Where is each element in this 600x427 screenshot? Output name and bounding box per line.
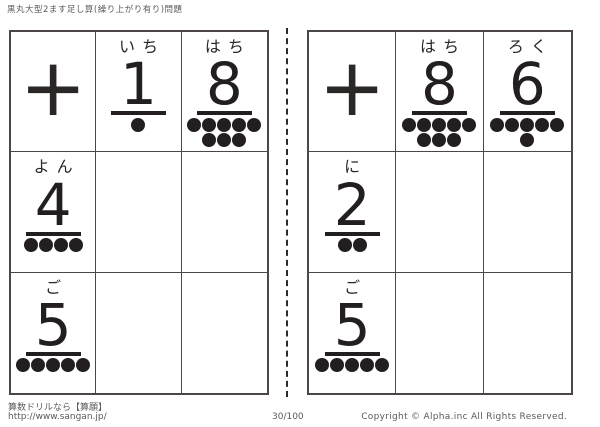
dot (315, 358, 329, 372)
dot (247, 118, 261, 132)
dot (187, 118, 201, 132)
dot (39, 238, 53, 252)
number-digit: 5 (26, 300, 81, 356)
left-addend-cell: ご 5 (11, 273, 96, 393)
number-digit: 4 (26, 180, 81, 236)
dot (16, 358, 30, 372)
dot (550, 118, 564, 132)
dot (232, 133, 246, 147)
page-indicator: 30/100 (272, 412, 304, 422)
dot (24, 238, 38, 252)
dot (61, 358, 75, 372)
plus-sign: + (319, 48, 386, 128)
dashed-cut-line (286, 28, 288, 397)
dot (360, 358, 374, 372)
answer-cell-empty (484, 152, 571, 272)
answer-cell-empty (396, 273, 483, 393)
number-block: ご 5 (16, 273, 91, 373)
dot-row (520, 132, 535, 147)
dot (417, 118, 431, 132)
number-digit: 6 (500, 59, 555, 115)
dot (505, 118, 519, 132)
dot (31, 358, 45, 372)
dot-group (490, 117, 565, 147)
dot-row (16, 358, 91, 373)
dot (330, 358, 344, 372)
number-block: ご 5 (315, 273, 390, 373)
dot-row (337, 238, 367, 253)
dot (432, 133, 446, 147)
dot (217, 133, 231, 147)
footer-site-url[interactable]: http://www.sangan.jp/ (8, 412, 107, 422)
dot-row (402, 117, 477, 132)
left-addend-cell: よん 4 (11, 152, 96, 272)
top-addend-cell: ろく 6 (484, 32, 571, 152)
answer-cell-empty (484, 273, 571, 393)
top-addend-cell: いち 1 (96, 32, 181, 152)
dot-group (337, 238, 367, 253)
dot-row (490, 117, 565, 132)
dot-group (23, 238, 83, 253)
dot (447, 118, 461, 132)
answer-cell-empty (96, 273, 181, 393)
dot-group (315, 358, 390, 373)
dot-row (187, 117, 262, 132)
dot (202, 118, 216, 132)
addition-table-left: + いち 1 はち 8 よん 4 ご 5 (9, 30, 269, 395)
dot-group (187, 117, 262, 147)
top-addend-cell: はち 8 (182, 32, 267, 152)
number-block: に 2 (325, 152, 380, 252)
top-addend-cell: はち 8 (396, 32, 483, 152)
dot (345, 358, 359, 372)
dot-group (131, 117, 146, 132)
dot (54, 238, 68, 252)
dot (375, 358, 389, 372)
answer-cell-empty (96, 152, 181, 272)
answer-cell-empty (182, 273, 267, 393)
number-digit: 1 (111, 59, 166, 115)
dot (462, 118, 476, 132)
number-block: よん 4 (23, 152, 83, 252)
dot (46, 358, 60, 372)
dot (490, 118, 504, 132)
dot (417, 133, 431, 147)
number-block: はち 8 (187, 32, 262, 147)
dot-row (315, 358, 390, 373)
copyright-text: Copyright © Alpha.inc All Rights Reserve… (361, 412, 567, 422)
dot (402, 118, 416, 132)
dot (353, 238, 367, 252)
number-block: いち 1 (111, 32, 166, 132)
dot (432, 118, 446, 132)
dot-row (417, 132, 462, 147)
number-digit: 5 (325, 300, 380, 356)
plus-sign: + (20, 48, 87, 128)
dot (202, 133, 216, 147)
number-digit: 2 (325, 180, 380, 236)
dot-group (16, 358, 91, 373)
addition-table-right: + はち 8 ろく 6 に 2 ご 5 (307, 30, 573, 395)
dot (338, 238, 352, 252)
dot-row (23, 238, 83, 253)
dot (520, 118, 534, 132)
dot (232, 118, 246, 132)
dot (520, 133, 534, 147)
answer-cell-empty (396, 152, 483, 272)
page-title: 黒丸大型2ます足し算(繰り上がり有り)問題 (7, 3, 183, 15)
operator-cell: + (11, 32, 96, 152)
dot-row (131, 117, 146, 132)
dot-row (202, 132, 247, 147)
number-block: はち 8 (402, 32, 477, 147)
number-block: ろく 6 (490, 32, 565, 147)
dot (447, 133, 461, 147)
dot (76, 358, 90, 372)
number-digit: 8 (197, 59, 252, 115)
dot (69, 238, 83, 252)
dot (131, 118, 145, 132)
left-addend-cell: に 2 (309, 152, 396, 272)
number-digit: 8 (412, 59, 467, 115)
dot (535, 118, 549, 132)
dot-group (402, 117, 477, 147)
left-addend-cell: ご 5 (309, 273, 396, 393)
answer-cell-empty (182, 152, 267, 272)
dot (217, 118, 231, 132)
operator-cell: + (309, 32, 396, 152)
